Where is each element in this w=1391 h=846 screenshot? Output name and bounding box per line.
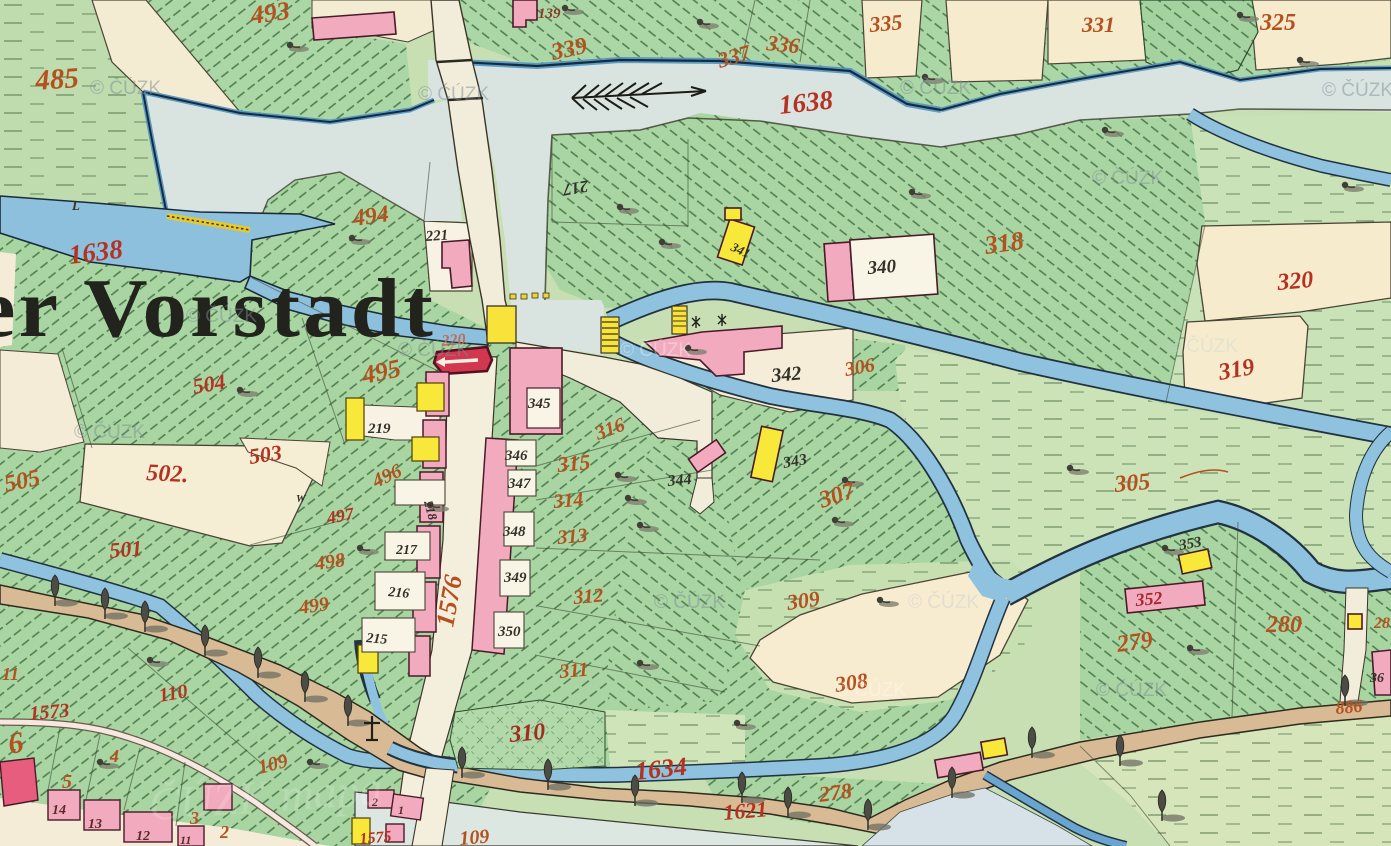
svg-text:1638: 1638: [777, 84, 834, 120]
svg-text:© ČÚZK: © ČÚZK: [620, 339, 691, 361]
svg-text:336: 336: [764, 30, 800, 58]
svg-text:345: 345: [527, 396, 551, 412]
svg-text:© ČÚZK: © ČÚZK: [186, 305, 257, 327]
svg-text:© ČÚZK: © ČÚZK: [900, 77, 971, 99]
svg-text:L: L: [71, 198, 80, 213]
svg-text:485: 485: [33, 62, 80, 97]
svg-text:347: 347: [507, 476, 531, 492]
svg-text:502.: 502.: [146, 460, 189, 488]
svg-text:216: 216: [387, 585, 410, 602]
svg-text:494: 494: [350, 201, 390, 232]
svg-text:1621: 1621: [722, 796, 768, 825]
svg-text:© ČÚZK: © ČÚZK: [90, 77, 161, 99]
svg-text:28: 28: [1373, 615, 1390, 632]
svg-text:1: 1: [398, 803, 404, 817]
svg-text:312: 312: [572, 584, 605, 609]
svg-text:© ČÚZK: © ČÚZK: [1096, 679, 1167, 701]
svg-text:335: 335: [867, 9, 903, 37]
svg-text:350: 350: [497, 624, 521, 640]
svg-text:1575: 1575: [359, 828, 392, 846]
svg-text:342: 342: [770, 362, 803, 387]
svg-text:315: 315: [555, 449, 591, 477]
svg-text:340: 340: [866, 256, 897, 279]
svg-text:11: 11: [2, 664, 19, 684]
svg-text:325: 325: [1259, 10, 1296, 36]
svg-text:311: 311: [558, 659, 590, 684]
svg-text:318: 318: [982, 226, 1026, 260]
svg-text:© ČÚZK: © ČÚZK: [418, 83, 489, 105]
svg-text:215: 215: [365, 631, 388, 648]
svg-text:886: 886: [1335, 696, 1364, 718]
svg-text:349: 349: [503, 570, 527, 586]
svg-text:348: 348: [502, 524, 526, 540]
svg-text:503: 503: [247, 440, 283, 469]
svg-text:331: 331: [1081, 12, 1115, 37]
svg-text:217: 217: [395, 543, 418, 558]
svg-text:12: 12: [136, 829, 150, 844]
svg-text:© ČÚZK: © ČÚZK: [398, 339, 469, 361]
svg-text:1634: 1634: [634, 752, 689, 786]
svg-text:280: 280: [1265, 612, 1302, 638]
svg-text:11: 11: [180, 833, 191, 846]
svg-text:314: 314: [552, 488, 585, 513]
svg-text:© ČÚZK: © ČÚZK: [1092, 167, 1163, 189]
svg-text:279: 279: [1114, 627, 1154, 658]
svg-text:13: 13: [88, 817, 102, 832]
svg-text:5: 5: [62, 771, 72, 793]
svg-text:278: 278: [816, 778, 853, 807]
svg-text:346: 346: [504, 448, 528, 464]
svg-text:499: 499: [297, 593, 331, 619]
svg-text:109: 109: [459, 825, 491, 846]
svg-text:© ČÚZK: © ČÚZK: [835, 679, 906, 701]
svg-text:© ČÚZK: © ČÚZK: [908, 591, 979, 613]
svg-text:498: 498: [313, 549, 347, 575]
svg-text:W: W: [296, 493, 307, 505]
svg-text:320: 320: [1275, 267, 1314, 296]
svg-text:© ČÚZK: © ČÚZK: [654, 591, 725, 613]
svg-text:313: 313: [556, 524, 589, 549]
svg-text:© ČÚZK: © ČÚZK: [1322, 79, 1391, 101]
svg-text:305: 305: [1112, 469, 1151, 498]
svg-text:310: 310: [507, 719, 546, 748]
svg-text:221: 221: [424, 227, 449, 245]
svg-text:© ČÚZK: © ČÚZK: [1167, 335, 1238, 357]
svg-text:139: 139: [538, 6, 561, 22]
svg-text:14: 14: [52, 803, 66, 818]
svg-text:1573: 1573: [29, 700, 71, 725]
svg-text:© ČÚZK: © ČÚZK: [74, 421, 145, 443]
svg-text:344: 344: [666, 471, 692, 490]
svg-text:309: 309: [784, 586, 821, 615]
svg-text:219: 219: [367, 421, 391, 437]
svg-text:36: 36: [1369, 671, 1384, 686]
svg-text:352: 352: [1134, 588, 1164, 610]
svg-text:4: 4: [109, 746, 119, 766]
svg-text:501: 501: [108, 535, 143, 563]
